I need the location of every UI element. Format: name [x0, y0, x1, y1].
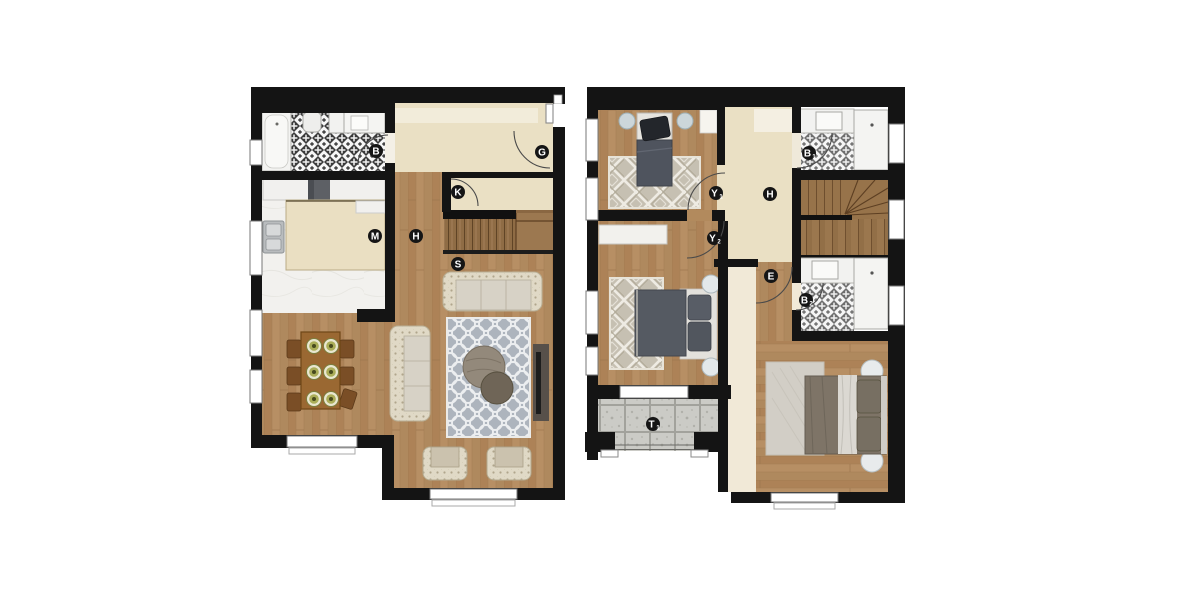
- svg-text:B: B: [804, 149, 811, 160]
- svg-text:Y: Y: [709, 234, 716, 245]
- svg-text:M: M: [371, 232, 379, 243]
- svg-text:H: H: [412, 232, 419, 243]
- svg-text:K: K: [454, 188, 462, 199]
- svg-text:B: B: [801, 296, 808, 307]
- svg-text:G: G: [538, 148, 546, 159]
- svg-text:E: E: [768, 272, 775, 283]
- svg-text:B: B: [372, 147, 379, 158]
- svg-text:T: T: [648, 420, 654, 431]
- svg-text:H: H: [766, 190, 773, 201]
- svg-text:S: S: [455, 260, 462, 271]
- svg-text:Y: Y: [711, 189, 718, 200]
